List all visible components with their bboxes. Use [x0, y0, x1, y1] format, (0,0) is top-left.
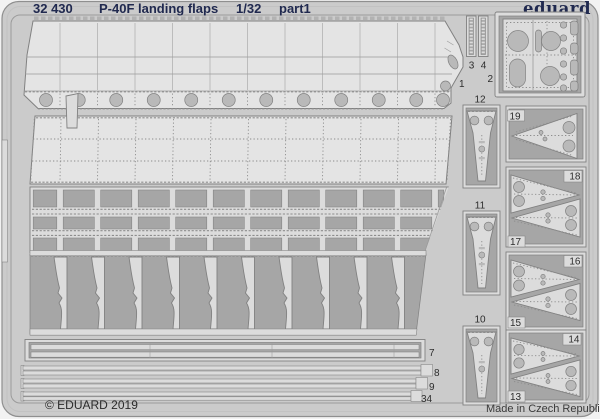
lightening-hole	[40, 94, 53, 107]
hole	[514, 344, 524, 354]
etch-mark	[541, 190, 545, 194]
instrument-slot	[536, 30, 542, 52]
rib-notch	[53, 288, 57, 294]
part-4-strip	[479, 16, 489, 57]
scale-label: 1/32	[236, 1, 261, 16]
part-12-wedge	[463, 105, 500, 188]
strip-part	[23, 371, 421, 375]
hole	[514, 182, 525, 193]
part-label-34: 34	[421, 394, 433, 405]
etch-mark	[479, 366, 485, 372]
rib-notch	[241, 288, 245, 294]
flap-skin-outline	[24, 21, 463, 109]
ladder-opening	[63, 190, 94, 207]
ladder-opening	[326, 238, 357, 251]
ladder-opening	[138, 190, 169, 207]
part-label-17: 17	[510, 237, 522, 248]
part-label-11: 11	[475, 201, 486, 212]
rib-notch	[391, 288, 395, 294]
ladder-opening	[251, 190, 282, 207]
ladder-opening	[326, 217, 357, 229]
part-label-14: 14	[568, 335, 580, 346]
etch-mark	[539, 131, 543, 135]
ladder-opening	[213, 217, 244, 229]
strip-end-bracket	[416, 378, 428, 390]
ladder-opening	[288, 217, 319, 229]
lightening-hole	[335, 94, 348, 107]
ladder-opening	[138, 217, 169, 229]
part-label-12: 12	[474, 95, 486, 106]
hole	[566, 304, 577, 315]
small-hole	[560, 85, 566, 91]
part-label-15: 15	[510, 318, 522, 329]
strip-part	[31, 352, 419, 357]
ladder-opening	[401, 217, 432, 229]
lightening-hole	[410, 94, 423, 107]
part-2-plate	[495, 12, 585, 97]
ladder-opening	[33, 217, 57, 229]
slot	[571, 81, 579, 91]
hole	[566, 206, 577, 217]
etch-mark	[541, 274, 545, 278]
instrument-hole	[508, 31, 529, 52]
part-11-wedge	[463, 211, 500, 295]
ladder-opening	[101, 217, 132, 229]
tip-hole	[441, 81, 451, 91]
part-label-10: 10	[474, 315, 486, 326]
strip-end-bracket	[421, 365, 433, 377]
ladder-opening	[251, 238, 282, 251]
part-label-9: 9	[429, 382, 435, 393]
hole	[514, 358, 524, 368]
ladder-opening	[363, 190, 394, 207]
part-label-1: 1	[459, 79, 465, 90]
ladder-opening	[288, 238, 319, 251]
hole	[563, 140, 575, 152]
lightening-hole	[185, 94, 198, 107]
rib-notch	[128, 288, 132, 294]
ladder-opening	[101, 238, 132, 251]
rib-notch	[203, 288, 207, 294]
rib-notch	[316, 288, 320, 294]
small-hole	[560, 48, 566, 54]
etch-mark	[541, 196, 545, 200]
etch-mark	[479, 247, 485, 249]
lightening-hole	[222, 94, 235, 107]
part-label-18: 18	[569, 172, 581, 183]
part-sheet-label: part1	[279, 1, 311, 16]
instrument-slot	[510, 59, 526, 87]
small-hole	[560, 74, 566, 80]
slot	[571, 60, 579, 75]
ladder-opening	[363, 217, 394, 229]
part-9-strip	[21, 378, 428, 390]
part-label-16: 16	[569, 257, 581, 268]
part-1-flap-skin	[24, 18, 463, 109]
carrier-rail	[30, 251, 426, 256]
made-in-text: Made in Czech Republic	[486, 403, 600, 415]
ladder-opening	[176, 238, 207, 251]
etch-mark	[546, 219, 550, 223]
strip-part	[23, 379, 416, 383]
lightening-hole	[260, 94, 273, 107]
ladder-opening	[288, 190, 319, 207]
hole	[470, 222, 479, 231]
part-label-7: 7	[429, 348, 435, 359]
part-10-wedge	[463, 326, 500, 405]
hole	[566, 380, 576, 390]
hole	[470, 337, 479, 346]
ladder-opening	[176, 190, 207, 207]
part-label-13: 13	[510, 392, 522, 403]
part-8-strip	[21, 365, 433, 377]
hole	[566, 220, 577, 231]
slot	[571, 21, 579, 35]
etch-mark	[479, 157, 485, 159]
etch-mark	[479, 263, 485, 265]
ladder-opening	[63, 217, 94, 229]
ladder-opening	[326, 190, 357, 207]
small-hole	[560, 22, 566, 28]
hinge-strip-fret	[30, 186, 450, 253]
etch-mark	[541, 281, 545, 285]
ladder-opening	[176, 217, 207, 229]
part-label-19: 19	[510, 112, 522, 123]
ladder-opening	[33, 238, 57, 251]
etch-mark	[546, 213, 550, 217]
etch-mark	[546, 380, 550, 384]
hole	[484, 337, 493, 346]
ladder-opening	[138, 238, 169, 251]
hole	[484, 222, 493, 231]
hole	[484, 116, 493, 125]
part-label-3: 3	[469, 61, 475, 72]
ladder-opening	[401, 190, 432, 207]
ladder-opening	[33, 190, 57, 207]
ladder-opening	[363, 238, 394, 251]
ladder-opening	[213, 238, 244, 251]
ladder-opening	[251, 217, 282, 229]
lightening-hole	[437, 94, 450, 107]
lightening-hole	[110, 94, 123, 107]
ladder-opening	[63, 238, 94, 251]
strip-part	[23, 384, 416, 388]
pe-fret-scan: 32 430 P-40F landing flaps 1/32 part1 ed…	[0, 0, 600, 419]
product-title: P-40F landing flaps	[99, 1, 218, 16]
copyright-text: © EDUARD 2019	[45, 398, 138, 412]
etch-mark	[479, 141, 485, 143]
strip-part	[23, 366, 421, 370]
etch-mark	[546, 374, 550, 378]
catalog-number: 32 430	[33, 1, 73, 16]
etch-mark	[546, 297, 550, 301]
hole	[514, 196, 525, 207]
part-label-4: 4	[481, 61, 487, 72]
hole	[566, 366, 576, 376]
strip-part	[23, 392, 411, 396]
part-3-strip	[467, 16, 477, 57]
etch-mark	[541, 358, 545, 362]
rib-notch	[91, 288, 95, 294]
ladder-opening	[101, 190, 132, 207]
instrument-hole	[542, 32, 561, 51]
rib-row	[30, 251, 426, 336]
part-7-strip-frame	[25, 340, 425, 362]
part-label-8: 8	[434, 368, 440, 379]
slot	[571, 43, 579, 54]
ladder-opening	[213, 190, 244, 207]
etch-mark	[479, 146, 485, 152]
instrument-hole	[541, 67, 560, 86]
carrier-rail	[30, 329, 417, 335]
small-hole	[560, 61, 566, 67]
hole	[563, 122, 575, 134]
flap-skin-outline	[30, 116, 452, 184]
etch-mark	[543, 137, 547, 141]
end-cap-part	[66, 94, 78, 129]
hole	[514, 266, 525, 277]
lightening-hole	[297, 94, 310, 107]
etch-mark	[546, 303, 550, 307]
etch-mark	[479, 252, 485, 258]
lightening-hole	[147, 94, 160, 107]
strip-part	[31, 345, 419, 350]
etch-mark	[479, 361, 485, 363]
hole	[470, 116, 479, 125]
rib-notch	[166, 288, 170, 294]
part-label-2: 2	[487, 74, 493, 85]
etch-mark	[541, 352, 545, 356]
rib-notch	[278, 288, 282, 294]
hole	[514, 280, 525, 291]
edge-strip	[2, 140, 8, 262]
rib-notch	[353, 288, 357, 294]
lightening-hole	[372, 94, 385, 107]
hole	[566, 290, 577, 301]
small-hole	[560, 35, 566, 41]
